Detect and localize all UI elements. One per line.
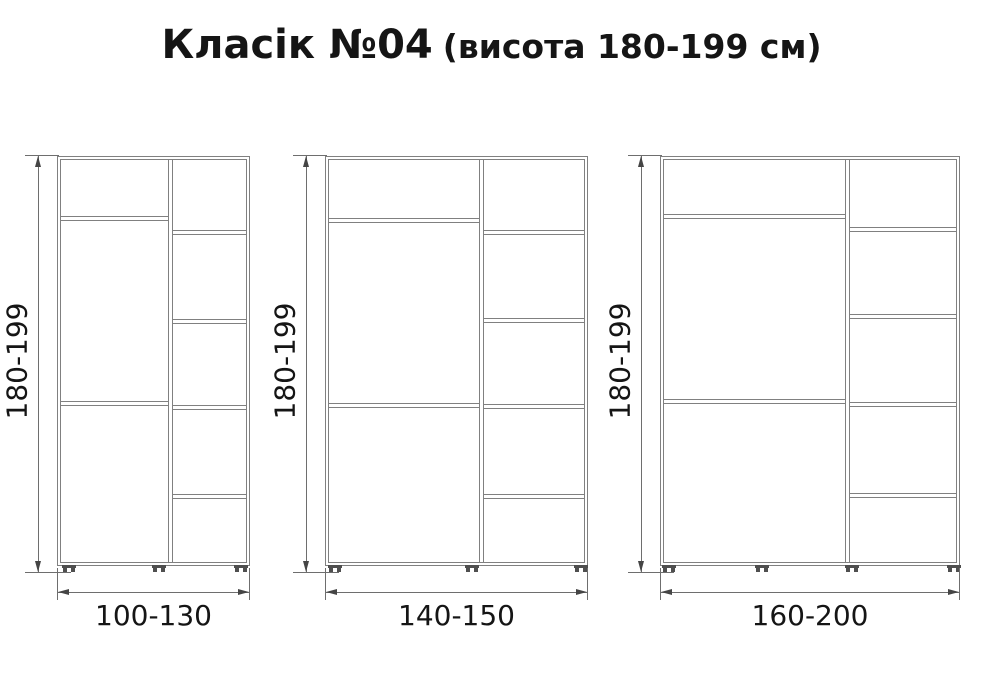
cabinet-2-height-arrow-top bbox=[303, 156, 309, 167]
cabinet-3-height-arrow-top bbox=[638, 156, 644, 167]
cabinet-3-foot-2 bbox=[755, 565, 769, 568]
cabinet-2-right-shelf-3 bbox=[484, 404, 584, 409]
cabinet-2-width-label: 140-150 bbox=[398, 599, 515, 632]
cabinet-2-body bbox=[325, 156, 588, 566]
cabinet-2-width-extension-left bbox=[325, 568, 326, 600]
cabinet-2-height-label: 180-199 bbox=[269, 303, 302, 420]
cabinet-2-width-arrow-right bbox=[576, 589, 587, 595]
cabinet-3-foot-1 bbox=[662, 565, 676, 568]
cabinet-1-foot-2 bbox=[152, 565, 166, 568]
cabinet-2-left-shelf-1 bbox=[329, 218, 479, 223]
cabinet-3-height-extension-top bbox=[628, 155, 662, 156]
cabinet-2-foot-1 bbox=[328, 565, 342, 568]
cabinet-1-width-extension-left bbox=[57, 568, 58, 600]
cabinet-3-inner-outline bbox=[663, 159, 957, 563]
cabinet-3-width-extension-left bbox=[660, 568, 661, 600]
cabinet-2-height-dimension-line bbox=[306, 156, 307, 572]
cabinet-1-left-shelf-1 bbox=[61, 216, 168, 221]
cabinet-2-right-shelf-1 bbox=[484, 230, 584, 235]
cabinet-3-right-shelf-2 bbox=[850, 314, 956, 319]
cabinet-1-height-dimension-line bbox=[38, 156, 39, 572]
cabinet-3-right-shelf-3 bbox=[850, 402, 956, 407]
cabinet-2-height-extension-top bbox=[293, 155, 327, 156]
cabinet-1-height-arrow-top bbox=[35, 156, 41, 167]
cabinet-3-width-arrow-left bbox=[661, 589, 672, 595]
cabinet-1-width-arrow-right bbox=[238, 589, 249, 595]
cabinet-2-foot-2 bbox=[465, 565, 479, 568]
diagram-canvas: Класік №04(висота 180-199 см) 180-199100… bbox=[0, 0, 983, 700]
cabinet-1-width-label: 100-130 bbox=[95, 599, 212, 632]
cabinet-2-foot-3 bbox=[574, 565, 588, 568]
cabinet-3-width-arrow-right bbox=[948, 589, 959, 595]
cabinet-1-width-arrow-left bbox=[58, 589, 69, 595]
cabinet-1-right-shelf-2 bbox=[173, 319, 246, 324]
title-main: Класік №04 bbox=[161, 22, 432, 68]
cabinet-1-left-shelf-2 bbox=[61, 401, 168, 406]
cabinet-1-foot-1 bbox=[62, 565, 76, 568]
cabinet-2-height-arrow-bottom bbox=[303, 561, 309, 572]
cabinet-3-center-partition bbox=[845, 160, 850, 562]
cabinet-2-right-shelf-2 bbox=[484, 318, 584, 323]
cabinet-3-width-extension-right bbox=[959, 568, 960, 600]
cabinet-3-left-shelf-2 bbox=[664, 399, 845, 404]
cabinet-1-height-arrow-bottom bbox=[35, 561, 41, 572]
cabinet-1-width-dimension-line bbox=[58, 592, 249, 593]
page-title: Класік №04(висота 180-199 см) bbox=[0, 22, 983, 68]
cabinet-1-right-shelf-3 bbox=[173, 405, 246, 410]
cabinet-2-height-extension-bottom bbox=[293, 572, 339, 573]
cabinet-1-body bbox=[57, 156, 250, 566]
cabinet-1-foot-3 bbox=[234, 565, 248, 568]
cabinet-1-height-extension-bottom bbox=[25, 572, 71, 573]
cabinet-2-width-extension-right bbox=[587, 568, 588, 600]
cabinet-3-right-shelf-4 bbox=[850, 493, 956, 498]
cabinet-2-center-partition bbox=[479, 160, 484, 562]
cabinet-1-center-partition bbox=[168, 160, 173, 562]
cabinet-2-right-shelf-4 bbox=[484, 494, 584, 499]
cabinet-3-height-label: 180-199 bbox=[604, 303, 637, 420]
cabinet-3-height-dimension-line bbox=[641, 156, 642, 572]
cabinet-3-right-shelf-1 bbox=[850, 227, 956, 232]
cabinet-2-width-dimension-line bbox=[326, 592, 587, 593]
cabinet-1-height-extension-top bbox=[25, 155, 59, 156]
cabinet-3-left-shelf-1 bbox=[664, 214, 845, 219]
title-sub: (висота 180-199 см) bbox=[443, 27, 822, 66]
cabinet-2-width-arrow-left bbox=[326, 589, 337, 595]
cabinet-3-body bbox=[660, 156, 960, 566]
cabinet-3-height-extension-bottom bbox=[628, 572, 674, 573]
cabinet-2-left-shelf-2 bbox=[329, 403, 479, 408]
cabinet-3-width-label: 160-200 bbox=[752, 599, 869, 632]
cabinet-1-right-shelf-1 bbox=[173, 230, 246, 235]
cabinet-3-height-arrow-bottom bbox=[638, 561, 644, 572]
cabinet-3-width-dimension-line bbox=[661, 592, 959, 593]
cabinet-1-height-label: 180-199 bbox=[1, 303, 34, 420]
cabinet-1-width-extension-right bbox=[249, 568, 250, 600]
cabinet-3-foot-3 bbox=[845, 565, 859, 568]
cabinet-1-right-shelf-4 bbox=[173, 494, 246, 499]
